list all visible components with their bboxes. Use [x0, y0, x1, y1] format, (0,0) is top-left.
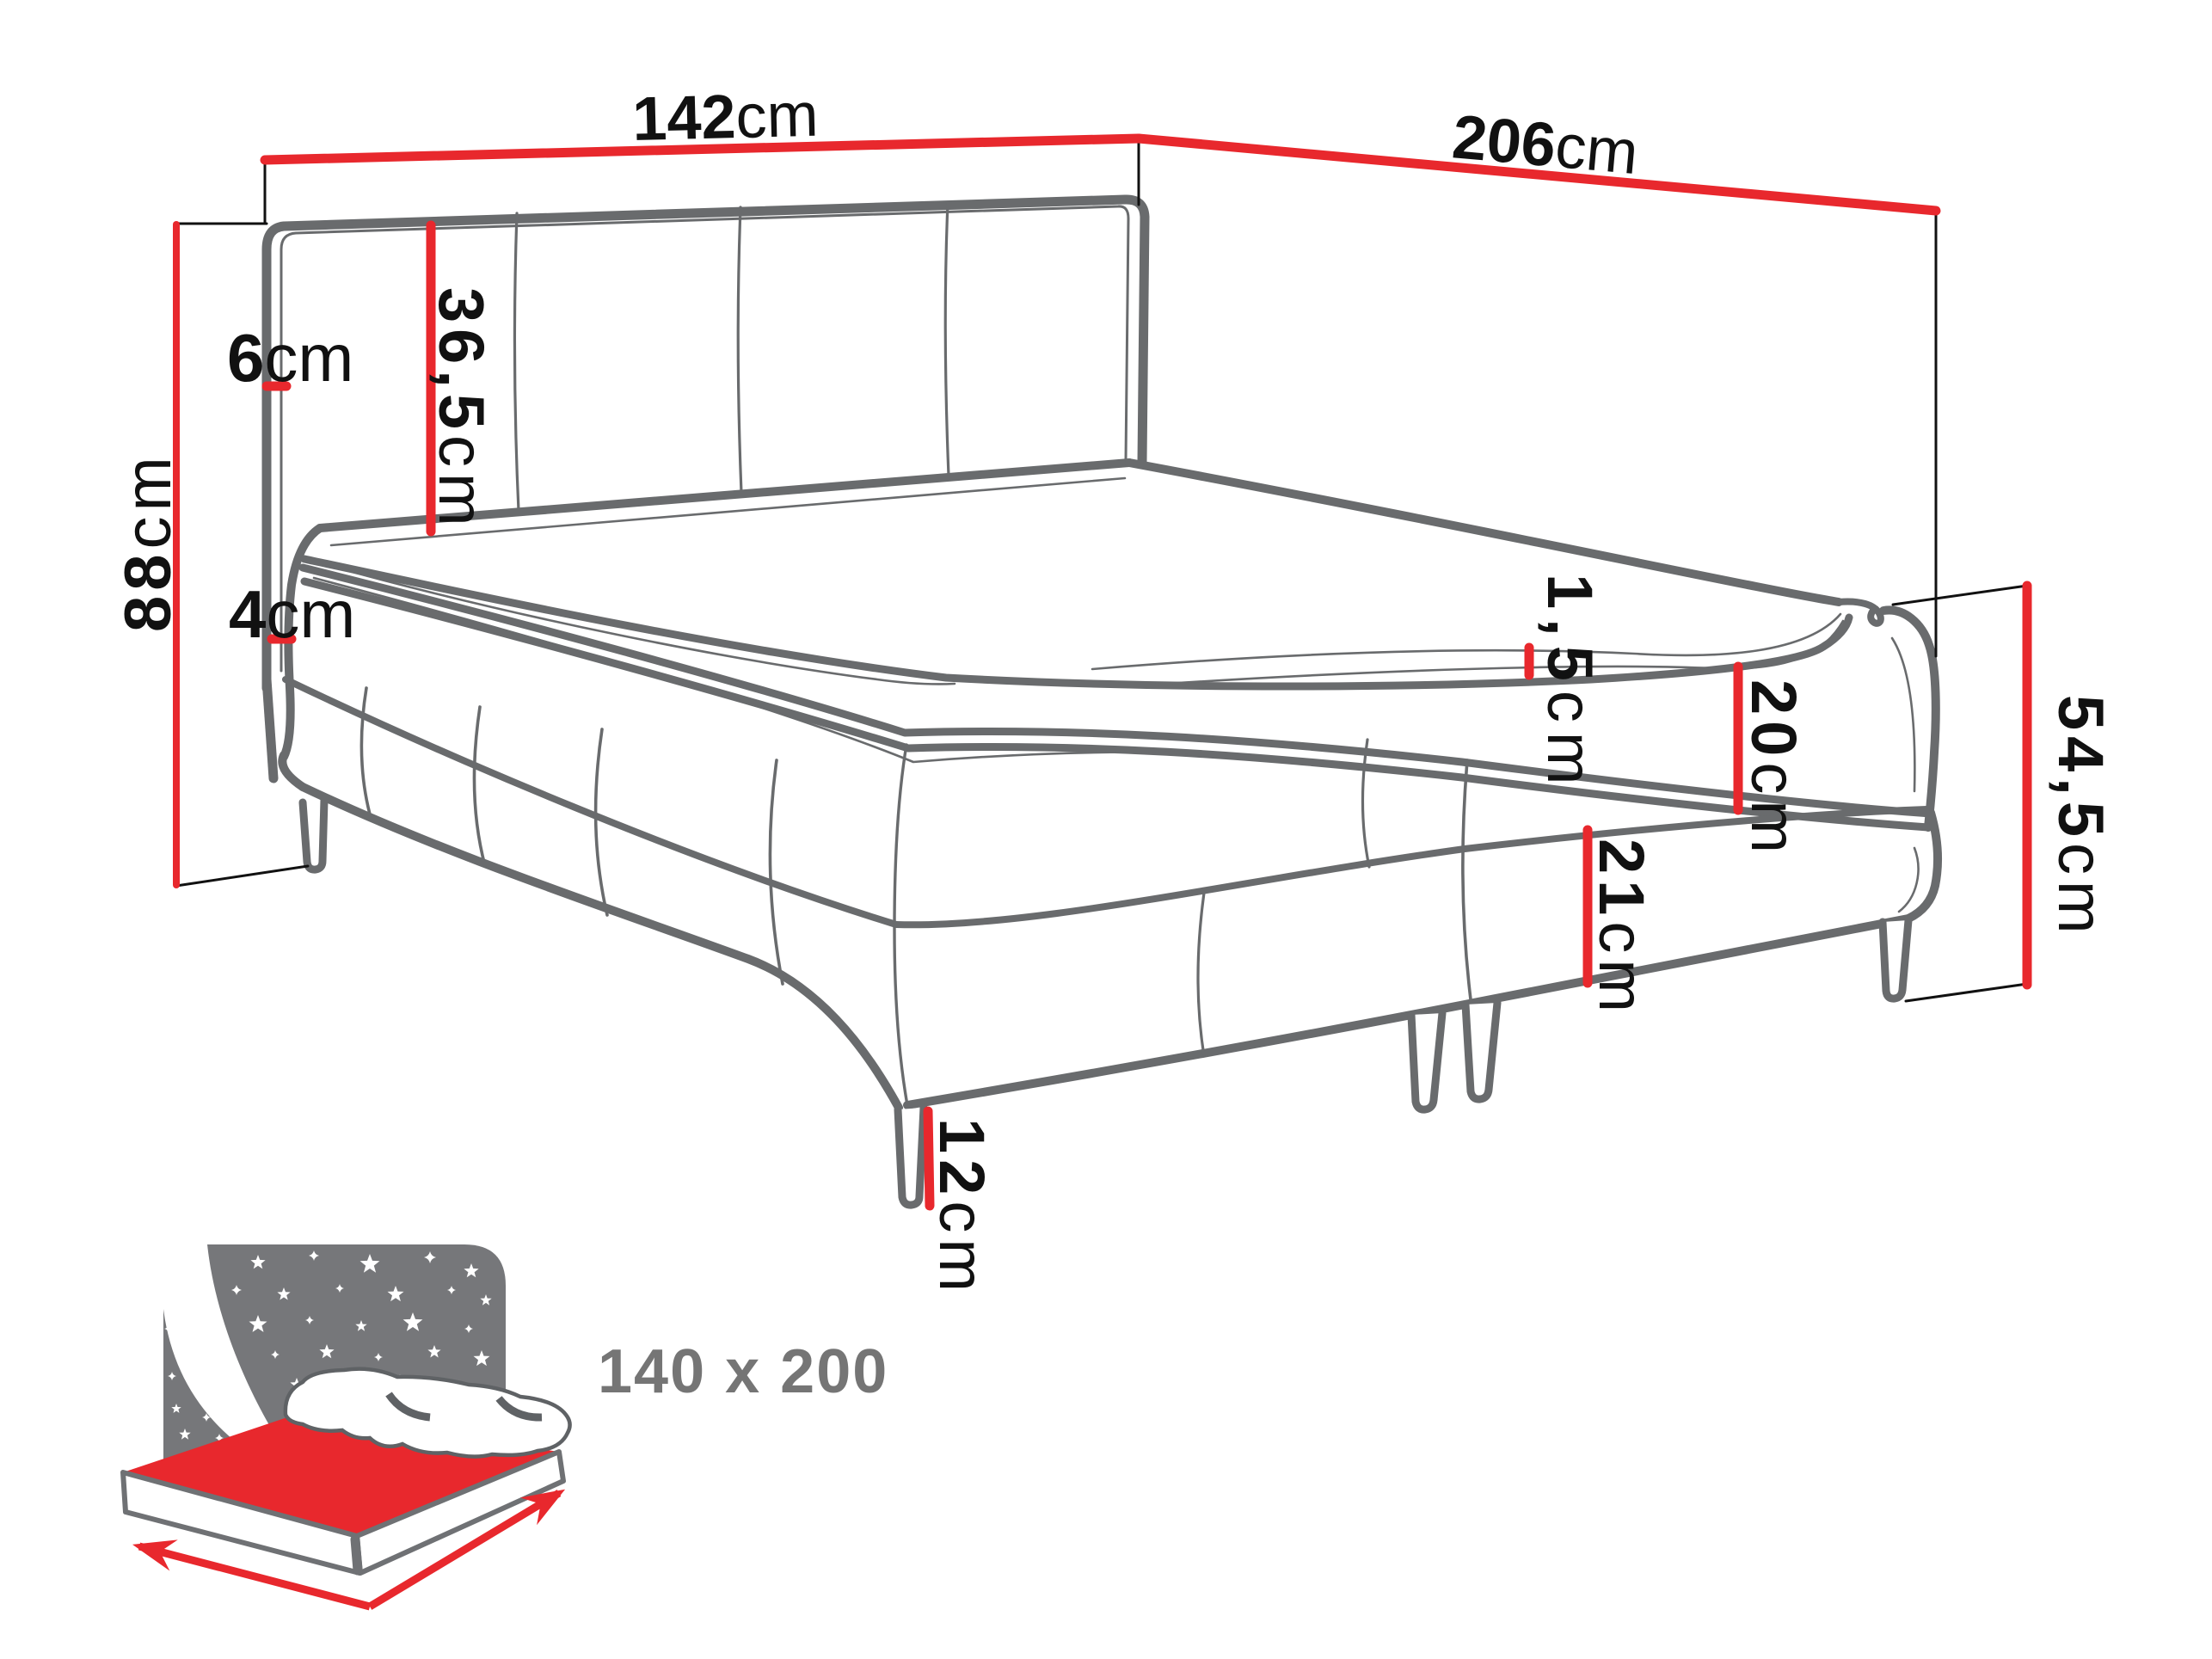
svg-text:6cm: 6cm — [227, 320, 353, 396]
svg-text:4cm: 4cm — [229, 576, 355, 652]
svg-text:36,5cm: 36,5cm — [426, 287, 497, 532]
svg-text:88cm: 88cm — [112, 452, 185, 632]
svg-text:1,5cm: 1,5cm — [1534, 574, 1606, 795]
svg-text:20cm: 20cm — [1738, 679, 1810, 859]
svg-text:54,5cm: 54,5cm — [2045, 695, 2117, 940]
svg-text:142cm: 142cm — [631, 81, 819, 154]
svg-text:140 x 200: 140 x 200 — [598, 1337, 888, 1406]
svg-text:12cm: 12cm — [926, 1118, 998, 1298]
svg-text:21cm: 21cm — [1586, 839, 1657, 1018]
